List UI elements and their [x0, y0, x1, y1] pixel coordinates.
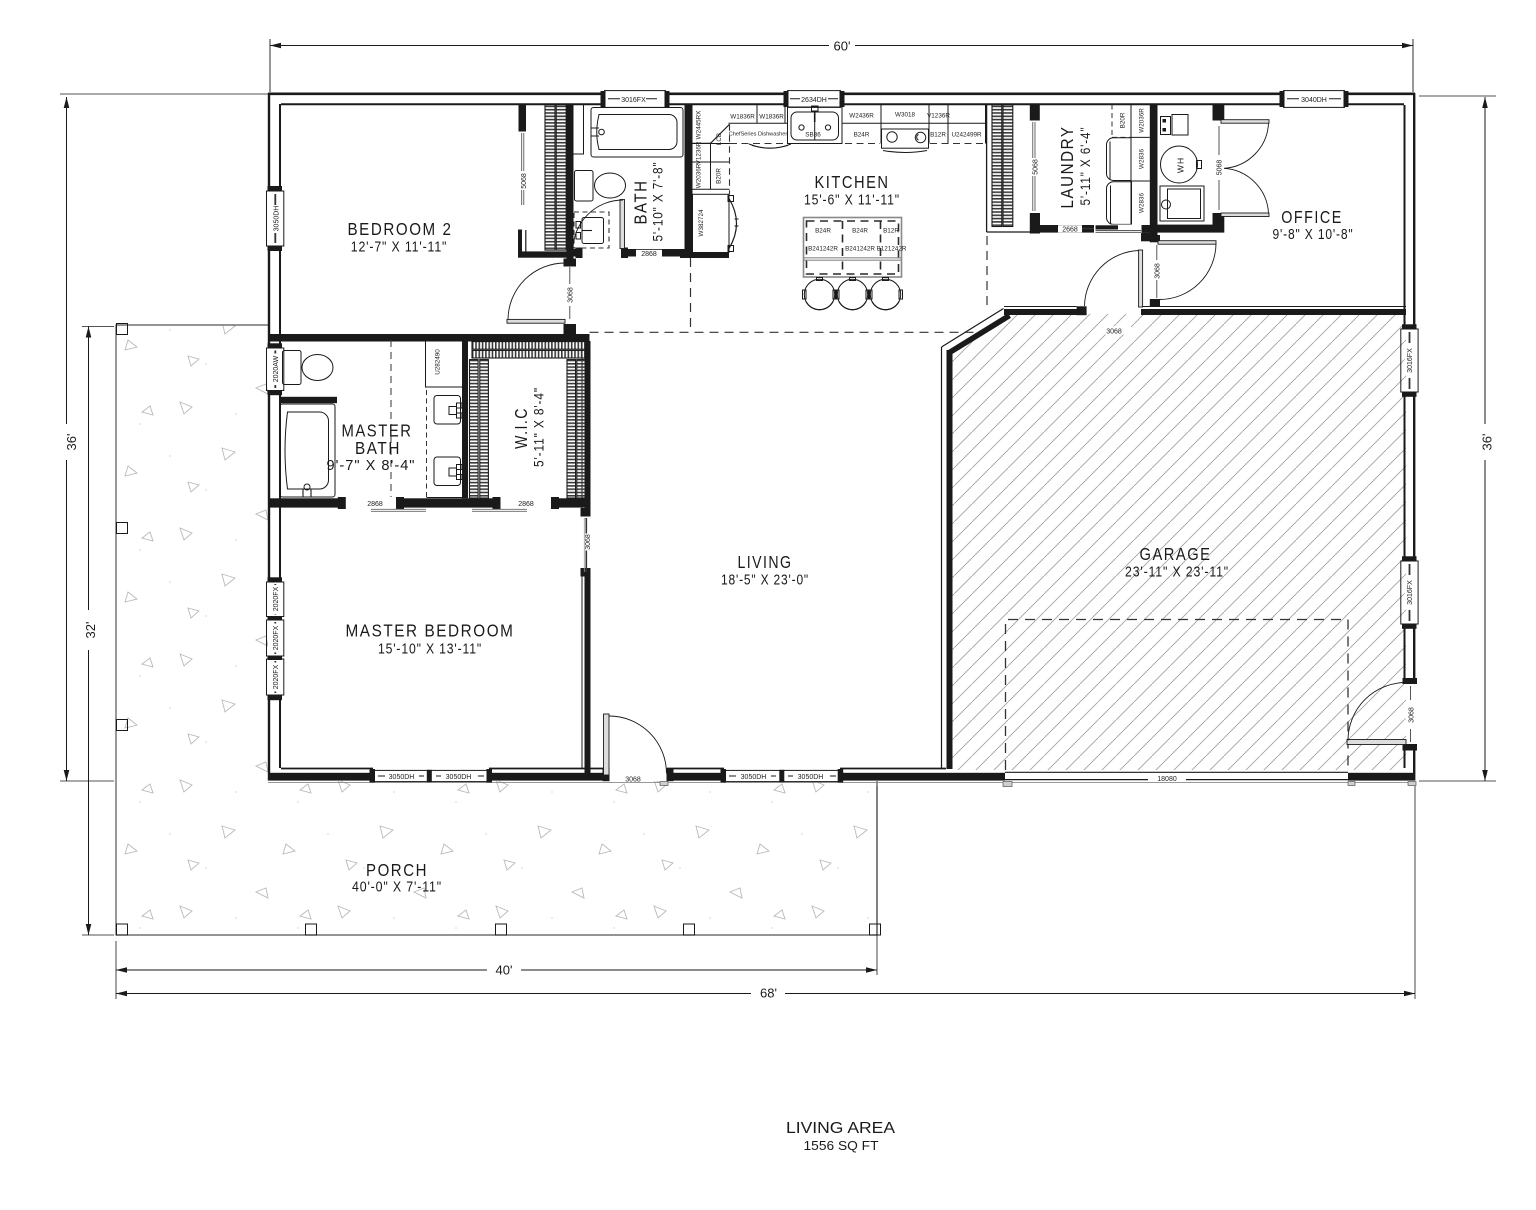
svg-text:LIVING: LIVING: [738, 552, 793, 572]
svg-text:23'-11" X 23'-11": 23'-11" X 23'-11": [1125, 565, 1229, 581]
svg-text:U282490: U282490: [435, 349, 442, 375]
svg-text:B12R: B12R: [883, 228, 899, 235]
svg-text:5'-11" X 8'-4": 5'-11" X 8'-4": [532, 387, 547, 467]
svg-text:3016FX: 3016FX: [1407, 348, 1414, 373]
svg-text:12'-7" X 11'-11": 12'-7" X 11'-11": [351, 240, 448, 256]
svg-text:B121242R: B121242R: [877, 246, 907, 253]
svg-text:2634DH: 2634DH: [801, 97, 827, 104]
svg-text:MASTER BEDROOM: MASTER BEDROOM: [346, 621, 515, 641]
svg-text:5'-10" X 7'-8": 5'-10" X 7'-8": [651, 162, 666, 242]
svg-text:KITCHEN: KITCHEN: [815, 172, 890, 192]
svg-text:B24R: B24R: [852, 228, 868, 235]
svg-text:5068: 5068: [1033, 159, 1040, 175]
svg-text:B24R: B24R: [815, 228, 831, 235]
svg-text:3068: 3068: [1409, 707, 1416, 723]
svg-text:3050DH: 3050DH: [741, 774, 767, 781]
svg-text:B20R: B20R: [716, 168, 723, 184]
svg-text:PORCH: PORCH: [366, 860, 428, 880]
svg-text:LAUNDRY: LAUNDRY: [1057, 126, 1077, 209]
svg-text:36': 36': [64, 434, 79, 451]
svg-text:3016FX: 3016FX: [621, 97, 646, 104]
svg-text:40'-0" X 7'-11": 40'-0" X 7'-11": [352, 880, 442, 896]
svg-text:3068: 3068: [1106, 329, 1122, 336]
svg-text:3040DH: 3040DH: [1301, 97, 1327, 104]
svg-text:18'-5" X 23'-0": 18'-5" X 23'-0": [721, 573, 809, 589]
svg-text:W3018: W3018: [895, 112, 915, 119]
svg-text:3068: 3068: [585, 534, 592, 550]
svg-text:W2436R: W2436R: [849, 113, 874, 120]
svg-text:LIVING AREA: LIVING AREA: [786, 1120, 896, 1137]
svg-text:LCB: LCB: [716, 133, 723, 145]
svg-text:32': 32': [83, 622, 98, 639]
svg-text:60': 60': [834, 39, 851, 54]
svg-text:W1836R: W1836R: [759, 114, 784, 121]
svg-text:W2445RX: W2445RX: [696, 110, 703, 139]
svg-text:W2036R: W2036R: [1139, 108, 1146, 133]
svg-text:3050DH: 3050DH: [798, 774, 824, 781]
svg-text:1556 SQ FT: 1556 SQ FT: [804, 1138, 879, 1153]
svg-text:2668: 2668: [1062, 226, 1078, 233]
svg-text:U242499R: U242499R: [951, 132, 982, 139]
svg-text:BATH: BATH: [355, 438, 401, 458]
svg-text:B24R: B24R: [854, 132, 870, 139]
svg-text:18080: 18080: [1157, 776, 1177, 783]
svg-text:5068: 5068: [1217, 160, 1224, 176]
svg-text:36': 36': [1480, 434, 1495, 451]
svg-text:40': 40': [496, 963, 513, 978]
svg-text:9'-8" X 10'-8": 9'-8" X 10'-8": [1273, 227, 1354, 243]
svg-text:B241242R: B241242R: [808, 246, 838, 253]
svg-text:BEDROOM 2: BEDROOM 2: [348, 219, 453, 239]
svg-text:W2836: W2836: [1139, 149, 1146, 169]
svg-text:B20R: B20R: [1120, 112, 1127, 128]
svg-text:15'-6" X 11'-11": 15'-6" X 11'-11": [804, 193, 900, 209]
svg-text:5068: 5068: [521, 173, 528, 189]
svg-text:2868: 2868: [641, 251, 657, 258]
svg-text:B12R: B12R: [930, 132, 946, 139]
svg-text:WH: WH: [1176, 157, 1186, 173]
svg-text:SB36: SB36: [805, 132, 821, 139]
svg-text:3068: 3068: [1155, 263, 1162, 279]
svg-text:W382724: W382724: [698, 209, 705, 236]
svg-text:3068: 3068: [625, 777, 641, 784]
svg-text:V1236R: V1236R: [927, 113, 950, 120]
svg-text:3050DH: 3050DH: [274, 206, 281, 232]
svg-text:2868: 2868: [367, 501, 383, 508]
svg-text:3068: 3068: [568, 287, 575, 303]
svg-text:2020FX: 2020FX: [273, 586, 280, 611]
svg-text:OFFICE: OFFICE: [1281, 207, 1343, 227]
svg-text:W1836R: W1836R: [730, 114, 755, 121]
svg-text:2020FX: 2020FX: [273, 664, 280, 689]
svg-text:V1236R: V1236R: [696, 141, 703, 164]
svg-text:3016FX: 3016FX: [1407, 580, 1414, 605]
svg-text:W.I.C: W.I.C: [511, 407, 531, 449]
svg-text:2020AW: 2020AW: [273, 355, 280, 382]
svg-text:3050DH: 3050DH: [446, 774, 472, 781]
svg-text:GARAGE: GARAGE: [1140, 544, 1212, 564]
svg-text:W2836: W2836: [1139, 193, 1146, 213]
svg-text:2868: 2868: [518, 501, 534, 508]
svg-text:15'-10" X 13'-11": 15'-10" X 13'-11": [378, 642, 482, 658]
svg-text:ChefSeries Dishwasher: ChefSeries Dishwasher: [729, 132, 788, 138]
svg-text:2020FX: 2020FX: [273, 625, 280, 650]
svg-text:68': 68': [760, 986, 777, 1001]
svg-text:W2036R: W2036R: [696, 163, 703, 188]
svg-text:9'-7" X 8'-4": 9'-7" X 8'-4": [327, 458, 416, 474]
svg-text:BATH: BATH: [631, 180, 651, 225]
svg-text:5'-11" X 6'-4": 5'-11" X 6'-4": [1078, 127, 1093, 206]
svg-text:B241242R: B241242R: [845, 246, 875, 253]
svg-text:3050DH: 3050DH: [389, 774, 415, 781]
